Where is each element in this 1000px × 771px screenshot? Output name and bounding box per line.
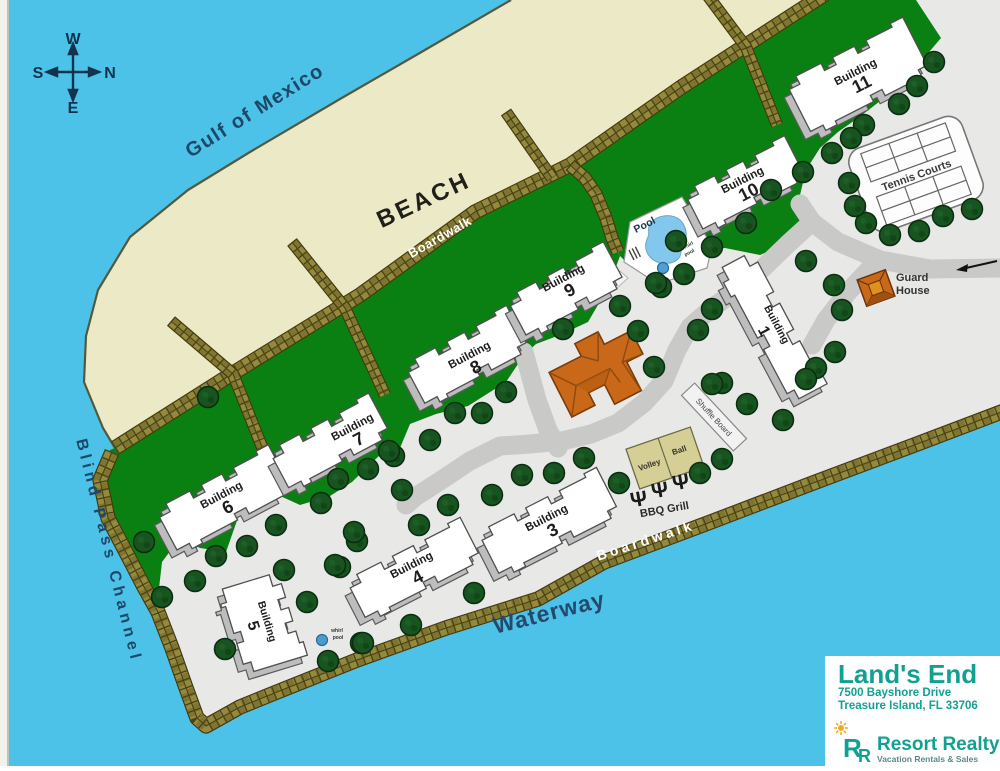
svg-text:Vacation Rentals & Sales: Vacation Rentals & Sales xyxy=(877,754,978,764)
svg-text:7500 Bayshore Drive: 7500 Bayshore Drive xyxy=(838,687,951,699)
svg-text:E: E xyxy=(68,100,79,117)
svg-text:S: S xyxy=(33,65,44,82)
svg-text:pool: pool xyxy=(333,635,344,641)
svg-text:Guard: Guard xyxy=(896,272,928,284)
svg-text:Treasure Island, FL 33706: Treasure Island, FL 33706 xyxy=(838,700,978,712)
svg-text:W: W xyxy=(65,31,81,48)
svg-text:N: N xyxy=(104,65,116,82)
svg-text:Land's End: Land's End xyxy=(838,659,977,689)
svg-text:House: House xyxy=(896,285,930,297)
svg-text:R: R xyxy=(858,746,871,766)
svg-text:whirl: whirl xyxy=(330,628,343,634)
svg-text:Resort Realty: Resort Realty xyxy=(877,734,1000,755)
